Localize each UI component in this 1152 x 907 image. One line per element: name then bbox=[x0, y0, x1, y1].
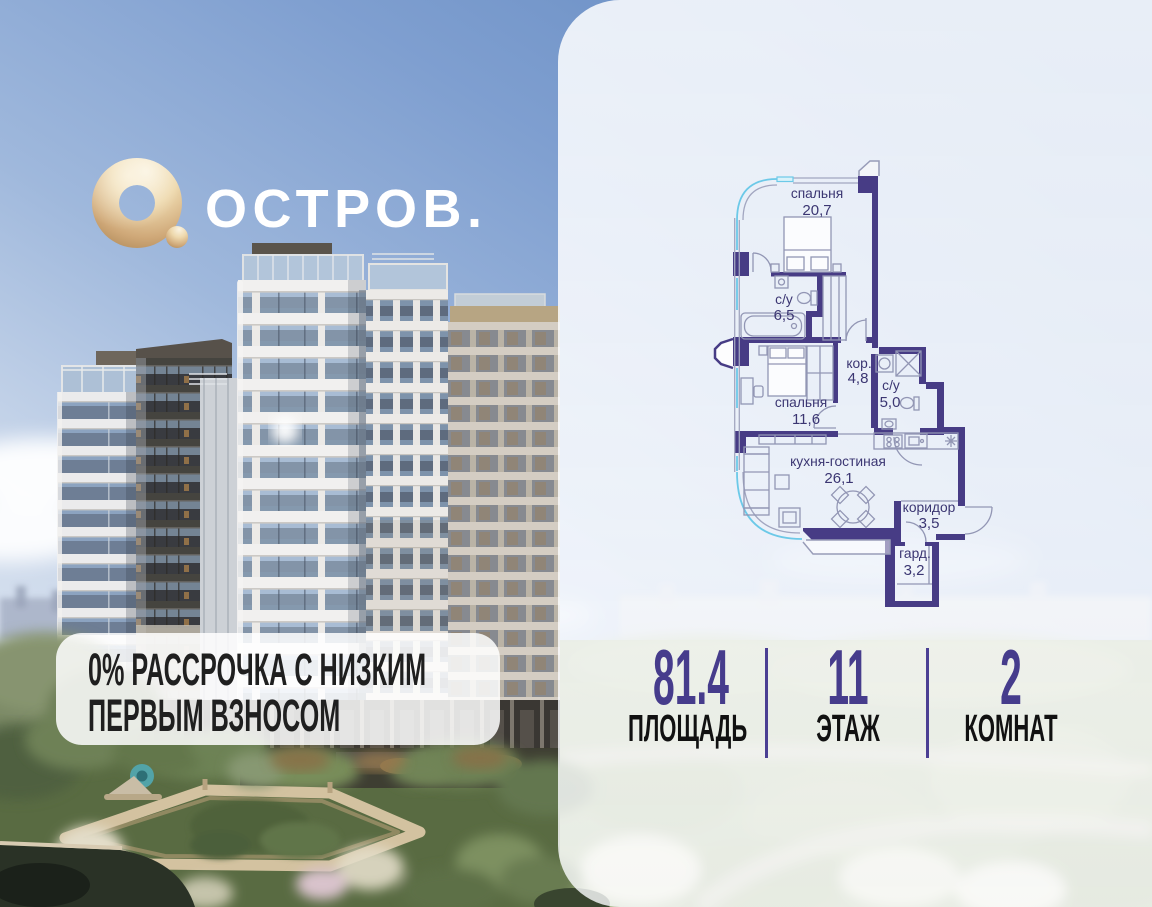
svg-text:4,8: 4,8 bbox=[848, 370, 869, 387]
svg-text:кор.: кор. bbox=[846, 356, 871, 371]
svg-text:5,0: 5,0 bbox=[880, 394, 901, 411]
svg-text:3,2: 3,2 bbox=[904, 562, 925, 579]
svg-text:20,7: 20,7 bbox=[802, 202, 831, 219]
svg-text:спальня: спальня bbox=[791, 186, 843, 201]
svg-text:коридор: коридор bbox=[903, 500, 956, 515]
svg-text:спальня: спальня bbox=[775, 395, 827, 410]
svg-text:6,5: 6,5 bbox=[774, 307, 795, 324]
svg-text:с/у: с/у bbox=[775, 292, 793, 307]
svg-text:кухня-гостиная: кухня-гостиная bbox=[790, 454, 886, 469]
svg-text:26,1: 26,1 bbox=[824, 470, 853, 487]
svg-text:гард.: гард. bbox=[899, 546, 931, 561]
svg-text:3,5: 3,5 bbox=[919, 515, 940, 532]
svg-text:с/у: с/у bbox=[882, 378, 900, 393]
svg-text:11,6: 11,6 bbox=[792, 411, 820, 428]
